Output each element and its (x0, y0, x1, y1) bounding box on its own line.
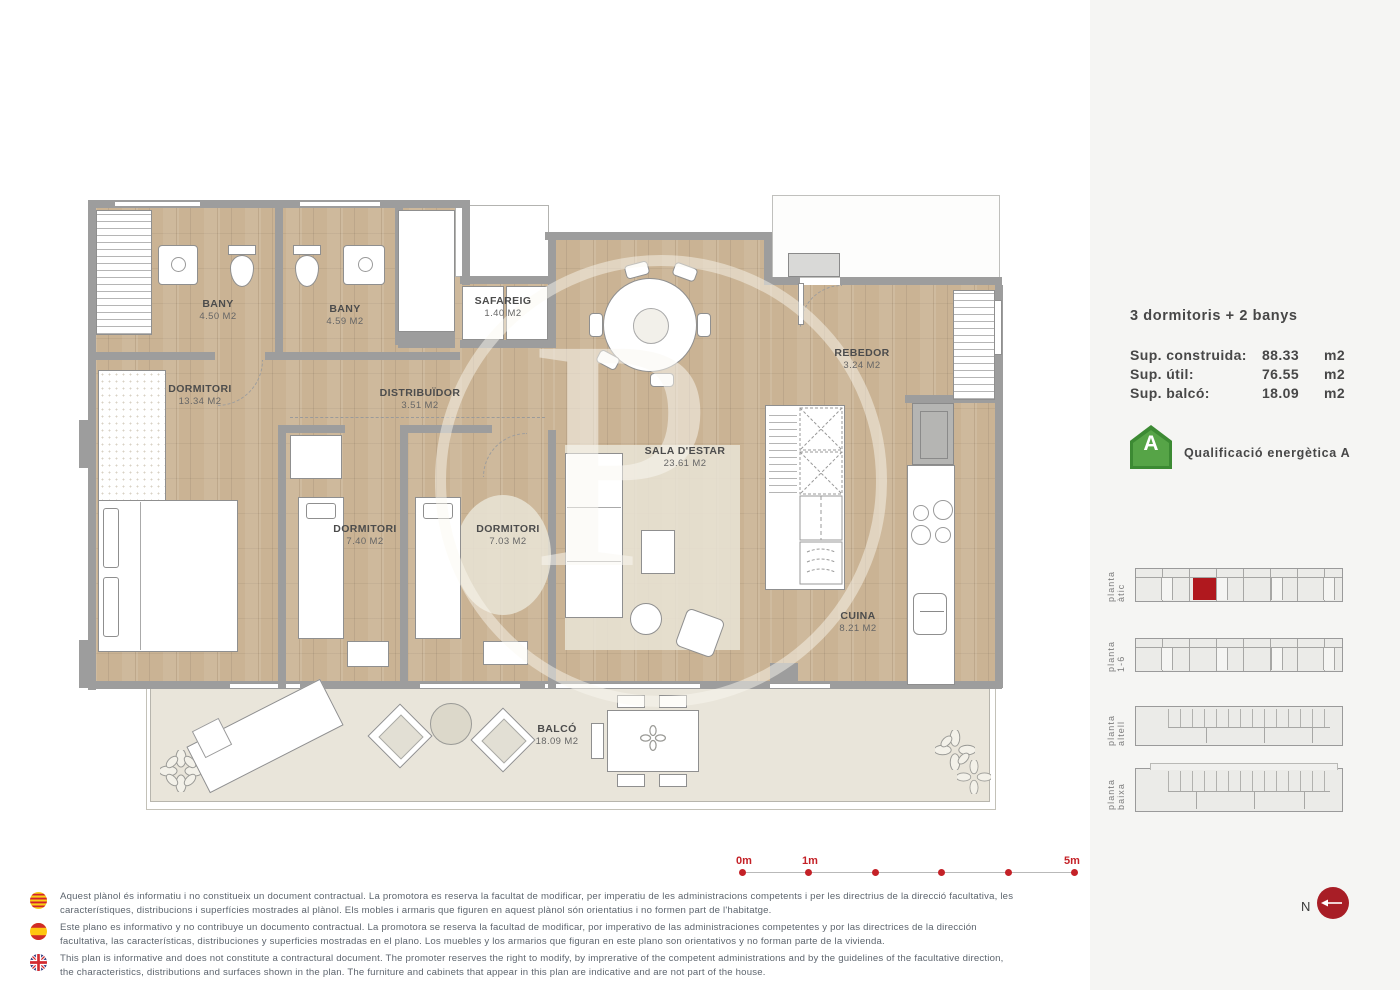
bed-dorm1 (98, 500, 238, 652)
highlighted-unit (1193, 578, 1216, 600)
scale-dot (872, 869, 879, 876)
entry-vestibule (788, 253, 840, 277)
balcony-side-table (430, 703, 472, 745)
scale-dot (938, 869, 945, 876)
balcony-chair-5 (617, 774, 645, 787)
room-label-rebedor: REBEDOR3.24 M2 (807, 347, 917, 372)
wardrobe-dorm2 (290, 435, 342, 479)
toilet-bany1-tank (228, 245, 256, 255)
room-label-dormitori1: DORMITORI13.34 M2 (145, 383, 255, 408)
surface-row: Sup. construida: 88.33 m2 (1130, 347, 1380, 366)
disclaimer-catalan: Aquest plànol és informatiu i no constit… (60, 890, 1015, 918)
scale-dot (739, 869, 746, 876)
level-label-baixa: planta baixa (1106, 762, 1126, 810)
level-label-1-6: planta 1-6 (1106, 636, 1126, 672)
info-sidebar: 3 dormitoris + 2 banys Sup. construida: … (1090, 0, 1400, 990)
fridge-inner (920, 411, 948, 459)
strip-divider (1304, 791, 1305, 809)
facade-pillar-1 (79, 420, 96, 468)
hob-burner-2 (933, 500, 953, 520)
surface-unit: m2 (1324, 385, 1364, 404)
dining-chair-3 (697, 313, 711, 337)
level-strip-baixa (1135, 768, 1343, 812)
surface-unit: m2 (1324, 347, 1364, 366)
strip-stalls (1168, 709, 1330, 728)
hob-burner-1 (913, 505, 929, 521)
wall-shaft-side (462, 200, 470, 285)
scale-dot (1005, 869, 1012, 876)
glass-door-sala (545, 683, 700, 689)
balcony-chair-3 (617, 695, 645, 708)
room-label-distribuidor: DISTRIBUÏDOR3.51 M2 (365, 387, 475, 412)
north-arrow-icon (1316, 886, 1350, 920)
scale-label-1m: 1m (802, 855, 818, 867)
wall-dorm2-top (278, 425, 345, 433)
level-label-atic: planta àtic (1106, 566, 1126, 602)
surface-value: 18.09 (1262, 385, 1324, 404)
strip-patio (1161, 648, 1173, 670)
strip-divider (1312, 727, 1313, 743)
shaft-mid (398, 210, 455, 332)
wall-safareig-top (460, 276, 553, 284)
entry-door-leaf (798, 283, 804, 325)
room-label-dormitori2: DORMITORI7.40 M2 (310, 523, 420, 548)
window-bany1 (115, 202, 200, 206)
pillow-dorm3 (423, 503, 453, 519)
strip-divider (1196, 791, 1197, 809)
scale-label-0m: 0m (736, 855, 752, 867)
room-label-bany2: BANY4.59 M2 (290, 303, 400, 328)
surface-row: Sup. útil: 76.55 m2 (1130, 366, 1380, 385)
surface-label: Sup. útil: (1130, 366, 1262, 385)
window-bany2 (300, 202, 380, 206)
energy-rating-label: Qualificació energètica A (1184, 446, 1350, 460)
floor-plan: P BANY4.50 M2 BANY4.59 M2 SAFAREIG1.40 M… (85, 195, 1005, 807)
wall-dorm3-top (400, 425, 492, 433)
scale-bar-line (742, 872, 1075, 873)
balcony-chair-4 (659, 695, 687, 708)
wall-bany-bottom-a (95, 352, 215, 360)
pillow-dorm2 (306, 503, 336, 519)
surface-label: Sup. construida: (1130, 347, 1262, 366)
cabinet-shelves (769, 413, 797, 493)
wall-entry-right (840, 277, 1002, 285)
surface-unit: m2 (1324, 366, 1364, 385)
disclaimer-spanish: Este plano es informativo y no contribuy… (60, 921, 1015, 949)
pouf-sala (630, 603, 662, 635)
strip-patio (1216, 578, 1228, 600)
strip-divider (1264, 727, 1265, 743)
disclaimer-english: This plan is informative and does not co… (60, 952, 1015, 980)
level-strip-altell (1135, 706, 1343, 746)
level-label-altell: planta altell (1106, 702, 1126, 746)
glass-door-dorm1 (230, 683, 300, 689)
scale-dot (805, 869, 812, 876)
room-label-bany1: BANY4.50 M2 (163, 298, 273, 323)
kitchen-faucet (920, 611, 944, 612)
sofa-cushion-line-1 (567, 507, 621, 508)
pillar-cuina (770, 663, 798, 683)
closet-top-left (96, 210, 152, 335)
room-label-cuina: CUINA8.21 M2 (803, 610, 913, 635)
surface-value: 88.33 (1262, 347, 1324, 366)
bed-dorm1-foldline (140, 502, 141, 650)
level-strip-1-6 (1135, 638, 1343, 672)
wall-dorm2-dorm3 (400, 430, 408, 688)
strip-patio (1271, 578, 1283, 600)
floorplan-sheet: P BANY4.50 M2 BANY4.59 M2 SAFAREIG1.40 M… (0, 0, 1400, 990)
hob-burner-4 (935, 527, 951, 543)
dining-chair-4 (650, 373, 674, 387)
pillow-dorm1-b (103, 577, 119, 637)
flag-uk-icon (30, 954, 47, 971)
strip-overhang (1150, 763, 1338, 770)
strip-patio (1323, 578, 1335, 600)
room-label-safareig: SAFAREIG1.40 M2 (448, 295, 558, 320)
wall-entry-left (772, 277, 800, 285)
hob-burner-3 (911, 525, 931, 545)
scale-dot (1071, 869, 1078, 876)
dining-centerpiece (633, 308, 669, 344)
sofa-sala (565, 453, 623, 618)
wall-dorm1-dorm2 (278, 430, 286, 688)
toilet-bany2-tank (293, 245, 321, 255)
level-strip-atic (1135, 568, 1343, 602)
room-label-balco: BALCÓ18.09 M2 (502, 723, 612, 748)
flag-catalonia-icon (30, 892, 47, 909)
sink-bany2-basin (358, 257, 373, 272)
dining-chair-5 (589, 313, 603, 337)
flag-spain-icon (30, 923, 47, 940)
sofa-cushion-line-2 (567, 561, 621, 562)
closet-rebedor (953, 290, 995, 400)
wall-safareig-right (548, 240, 556, 345)
strip-divider (1254, 791, 1255, 809)
kitchen-counter (907, 465, 955, 685)
strip-divider (1206, 727, 1207, 743)
scale-label-5m: 5m (1064, 855, 1080, 867)
strip-patio (1216, 648, 1228, 670)
surface-row: Sup. balcó: 18.09 m2 (1130, 385, 1380, 404)
energy-rating-letter: A (1130, 432, 1172, 456)
pillow-dorm1-a (103, 508, 119, 568)
facade-pillar-2 (79, 640, 96, 688)
balcony-table-flower-icon (640, 725, 666, 751)
surface-label: Sup. balcó: (1130, 385, 1262, 404)
balcony-chair-6 (659, 774, 687, 787)
north-label: N (1301, 899, 1310, 914)
kitchen-sink (913, 593, 947, 635)
strip-stalls (1168, 771, 1330, 792)
strip-patio (1323, 648, 1335, 670)
wall-bany-divider (275, 207, 283, 360)
room-label-dormitori3: DORMITORI7.03 M2 (453, 523, 563, 548)
wall-dining-top (545, 232, 772, 240)
room-label-sala: SALA D'ESTAR23.61 M2 (630, 445, 740, 470)
strip-patio (1161, 578, 1173, 600)
plant-balcony-right2-icon (957, 760, 991, 794)
unit-title: 3 dormitoris + 2 banys (1130, 308, 1298, 324)
rug-dorm3 (455, 495, 551, 615)
sink-bany1-basin (171, 257, 186, 272)
desk-dorm2 (347, 641, 389, 667)
wall-dining-right (764, 232, 772, 285)
dashed-corridor-line (290, 417, 545, 418)
wall-bany-bottom-b (265, 352, 460, 360)
coffee-table-sala (641, 530, 675, 574)
strip-patio (1271, 648, 1283, 670)
cabinet-xpattern (799, 407, 843, 587)
wall-safareig-bottom (460, 340, 556, 348)
desk-dorm3 (483, 641, 528, 665)
glass-door-dorm3 (420, 683, 520, 689)
shaft-mid-base (398, 332, 455, 348)
glass-door-cuina (770, 683, 830, 689)
surface-value: 76.55 (1262, 366, 1324, 385)
